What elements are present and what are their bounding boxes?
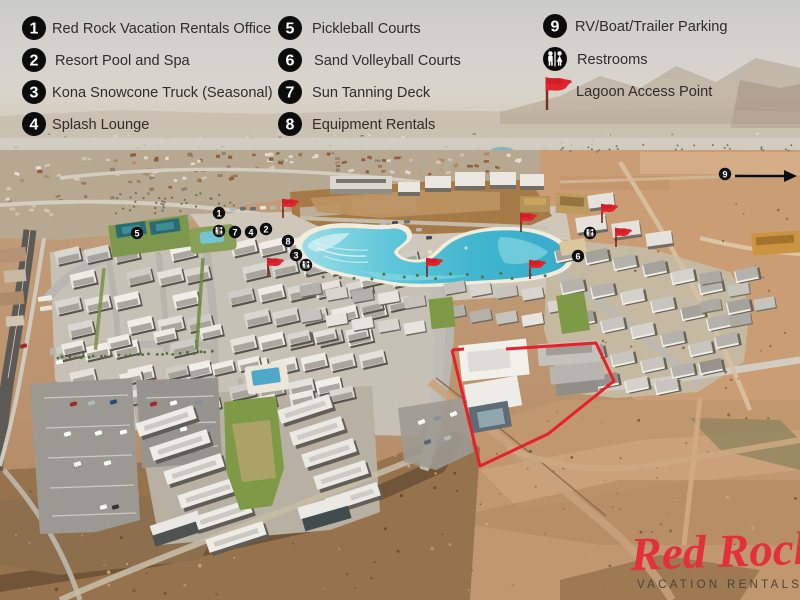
svg-text:1: 1	[216, 208, 221, 218]
svg-text:VACATION RENTALS: VACATION RENTALS	[637, 579, 800, 591]
svg-text:Equipment Rentals: Equipment Rentals	[312, 117, 435, 133]
svg-text:6: 6	[575, 251, 580, 261]
svg-text:3: 3	[293, 250, 298, 260]
svg-text:Splash Lounge: Splash Lounge	[52, 117, 149, 133]
svg-text:RV/Boat/Trailer Parking: RV/Boat/Trailer Parking	[575, 19, 728, 35]
svg-text:Lagoon Access Point: Lagoon Access Point	[576, 84, 712, 100]
svg-text:Red Rock: Red Rock	[629, 522, 800, 581]
svg-text:2: 2	[263, 224, 268, 234]
svg-text:8: 8	[285, 236, 290, 246]
svg-text:Red Rock Vacation Rentals Offi: Red Rock Vacation Rentals Office	[52, 21, 271, 37]
svg-text:2: 2	[30, 53, 39, 70]
svg-text:Resort Pool and Spa: Resort Pool and Spa	[55, 53, 191, 69]
svg-text:Restrooms: Restrooms	[577, 52, 648, 68]
svg-text:9: 9	[722, 169, 727, 179]
svg-text:7: 7	[286, 85, 295, 102]
svg-text:4: 4	[30, 117, 39, 134]
svg-text:7: 7	[232, 227, 237, 237]
svg-text:5: 5	[286, 21, 295, 38]
svg-text:Pickleball Courts: Pickleball Courts	[312, 21, 421, 37]
svg-text:Kona Snowcone Truck (Seasonal): Kona Snowcone Truck (Seasonal)	[52, 85, 273, 101]
svg-text:8: 8	[286, 117, 295, 134]
svg-text:5: 5	[134, 228, 139, 238]
svg-text:Sand Volleyball Courts: Sand Volleyball Courts	[314, 53, 461, 69]
svg-text:4: 4	[248, 227, 253, 237]
svg-text:6: 6	[286, 53, 295, 70]
svg-text:Sun Tanning Deck: Sun Tanning Deck	[312, 85, 431, 101]
svg-text:1: 1	[30, 21, 39, 38]
svg-text:3: 3	[30, 85, 39, 102]
svg-text:9: 9	[551, 19, 560, 36]
